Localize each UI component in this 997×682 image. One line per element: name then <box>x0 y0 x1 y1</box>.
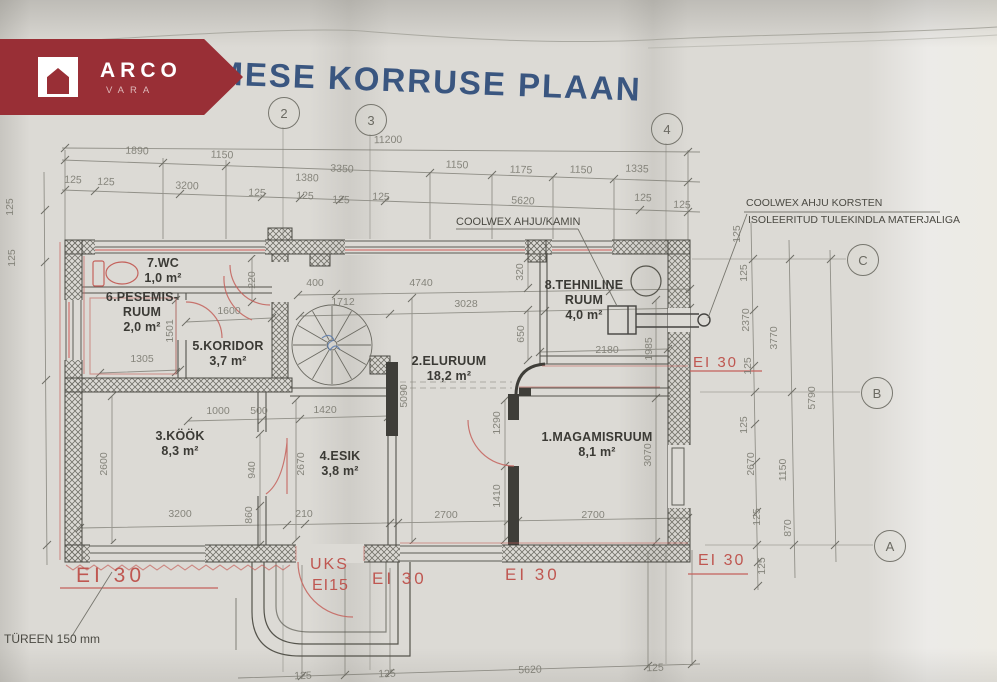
dim-label: 3028 <box>454 298 477 310</box>
dim-label: 1150 <box>446 159 469 172</box>
dim-label: 1380 <box>295 172 319 185</box>
dim-label: 1890 <box>125 145 149 158</box>
dim-label: 2670 <box>745 452 757 475</box>
fire-rating-annotation: EI 30 <box>693 354 738 371</box>
dim-label: 125 <box>731 225 743 243</box>
dim-label: 11200 <box>374 134 403 146</box>
room-label-line: RUUM <box>106 305 178 320</box>
room-label-line: 1,0 m² <box>144 271 181 286</box>
room-label-line: 8,3 m² <box>155 444 204 459</box>
fire-rating-annotation: EI 30 <box>505 565 560 585</box>
dim-label: 2600 <box>98 452 110 475</box>
room-label-line: 3.KÖÖK <box>155 429 204 444</box>
dim-label: 1290 <box>491 411 503 434</box>
text-annotation: ISOLEERITUD TULEKINDLA MATERJALIGA <box>748 214 960 226</box>
room-label-line: 6.PESEMIS- <box>106 290 178 305</box>
dim-label: 3350 <box>330 162 354 175</box>
dim-label: 400 <box>306 277 324 289</box>
room-label-line: 2.ELURUUM <box>412 354 487 369</box>
dim-label: 220 <box>246 271 258 289</box>
dim-label: 1600 <box>217 305 240 317</box>
dim-label: 320 <box>514 263 526 281</box>
dim-label: 2700 <box>581 509 604 521</box>
room-label-line: 3,8 m² <box>320 464 361 479</box>
dim-label: 125 <box>296 190 314 203</box>
grid-bubble-label: A <box>886 539 895 554</box>
dim-label: 2700 <box>434 509 457 521</box>
dim-label: 125 <box>97 176 115 189</box>
dim-label: 125 <box>372 191 390 204</box>
dim-label: 1410 <box>491 484 503 507</box>
dim-label: 5790 <box>806 386 818 409</box>
grid-bubble-label: 2 <box>280 106 287 121</box>
dim-label: 125 <box>738 416 750 434</box>
dim-label: 1305 <box>130 353 153 365</box>
dim-label: 125 <box>756 557 768 575</box>
room-label: 7.WC1,0 m² <box>144 256 181 286</box>
room-label: 6.PESEMIS-RUUM2,0 m² <box>106 290 178 335</box>
dim-label: 3770 <box>768 326 780 349</box>
dim-label: 5620 <box>511 194 535 207</box>
dim-label: 125 <box>646 662 664 675</box>
grid-bubble-2: 2 <box>268 97 300 129</box>
room-label: 4.ESIK3,8 m² <box>320 449 361 479</box>
photographed-floorplan: IMESE KORRUSE PLAAN ARCO VARA 1120018901… <box>0 0 997 682</box>
dim-label: 1985 <box>643 337 655 360</box>
dim-label: 125 <box>742 357 754 375</box>
dim-label: 860 <box>243 506 255 524</box>
dim-label: 1712 <box>331 296 354 308</box>
fire-rating-annotation: UKS <box>310 556 349 574</box>
room-label-line: 4.ESIK <box>320 449 361 464</box>
room-label-line: 18,2 m² <box>412 369 487 384</box>
dim-label: 2180 <box>595 344 618 356</box>
dim-label: 125 <box>6 249 18 267</box>
plan-text-labels: 1120018901150335011501175115013351380125… <box>0 0 997 682</box>
dim-label: 4740 <box>409 277 432 289</box>
grid-bubble-4: 4 <box>651 113 683 145</box>
dim-label: 2670 <box>295 452 307 475</box>
dim-label: 125 <box>294 670 312 682</box>
dim-label: 210 <box>295 508 313 520</box>
dim-label: 940 <box>246 461 258 479</box>
dim-label: 5620 <box>518 664 542 677</box>
room-label-line: 7.WC <box>144 256 181 271</box>
dim-label: 1150 <box>777 459 789 482</box>
room-label-line: 5.KORIDOR <box>192 339 263 354</box>
room-label: 1.MAGAMISRUUM8,1 m² <box>542 430 653 460</box>
room-label: 5.KORIDOR3,7 m² <box>192 339 263 369</box>
fire-rating-annotation: EI 30 <box>372 569 427 589</box>
dim-label: 125 <box>751 508 763 526</box>
grid-bubble-3: 3 <box>355 104 387 136</box>
room-label-line: 1.MAGAMISRUUM <box>542 430 653 445</box>
dim-label: 870 <box>782 519 794 537</box>
grid-bubble-label: C <box>858 253 867 268</box>
dim-label: 125 <box>738 264 750 282</box>
dim-label: 125 <box>4 198 16 216</box>
grid-bubble-label: 3 <box>367 113 374 128</box>
dim-label: 650 <box>515 325 527 343</box>
grid-bubble-label: B <box>873 386 882 401</box>
room-label-line: 8.TEHNILINE <box>545 278 624 293</box>
dim-label: 125 <box>332 194 350 207</box>
room-label-line: 8,1 m² <box>542 445 653 460</box>
dim-label: 5090 <box>398 384 410 407</box>
dim-label: 125 <box>673 199 691 212</box>
room-label: 8.TEHNILINERUUM4,0 m² <box>545 278 624 323</box>
dim-label: 500 <box>250 405 268 417</box>
room-label-line: 2,0 m² <box>106 320 178 335</box>
fire-rating-annotation: EI 30 <box>76 564 145 588</box>
text-annotation: COOLWEX AHJU/KAMIN <box>456 216 580 228</box>
dim-label: 1420 <box>313 404 336 416</box>
fire-rating-annotation: EI 30 <box>698 552 745 570</box>
room-label: 3.KÖÖK8,3 m² <box>155 429 204 459</box>
grid-bubble-B: B <box>861 377 893 409</box>
grid-bubble-C: C <box>847 244 879 276</box>
dim-label: 1150 <box>211 149 234 162</box>
text-annotation: TÜREEN 150 mm <box>4 632 100 646</box>
fire-rating-annotation: EI15 <box>312 577 349 595</box>
grid-bubble-A: A <box>874 530 906 562</box>
dim-label: 3200 <box>175 180 199 193</box>
dim-label: 1000 <box>206 405 229 417</box>
dim-label: 125 <box>64 174 82 187</box>
room-label-line: RUUM <box>545 293 624 308</box>
dim-label: 125 <box>378 668 396 681</box>
dim-label: 125 <box>248 187 266 200</box>
dim-label: 2370 <box>740 308 752 331</box>
text-annotation: COOLWEX AHJU KORSTEN <box>746 197 882 209</box>
dim-label: 3200 <box>168 508 191 520</box>
grid-bubble-label: 4 <box>663 122 670 137</box>
dim-label: 1175 <box>510 164 533 177</box>
dim-label: 125 <box>634 192 652 205</box>
room-label-line: 4,0 m² <box>545 308 624 323</box>
room-label-line: 3,7 m² <box>192 354 263 369</box>
room-label: 2.ELURUUM18,2 m² <box>412 354 487 384</box>
dim-label: 1150 <box>570 164 593 177</box>
dim-label: 1335 <box>625 163 649 176</box>
